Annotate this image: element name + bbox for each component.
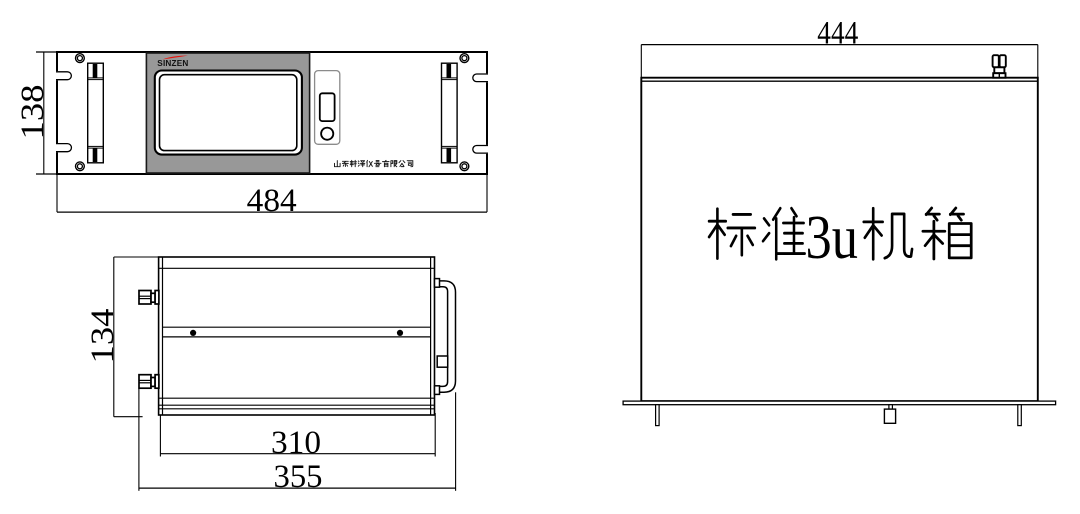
svg-text:134: 134: [85, 309, 121, 364]
svg-text:444: 444: [817, 16, 858, 52]
svg-text:484: 484: [247, 183, 297, 219]
svg-text:355: 355: [274, 459, 323, 495]
svg-text:310: 310: [271, 425, 321, 461]
svg-text:138: 138: [15, 85, 51, 140]
svg-text:SINZEN: SINZEN: [157, 59, 188, 68]
svg-text:3u: 3u: [806, 204, 859, 272]
